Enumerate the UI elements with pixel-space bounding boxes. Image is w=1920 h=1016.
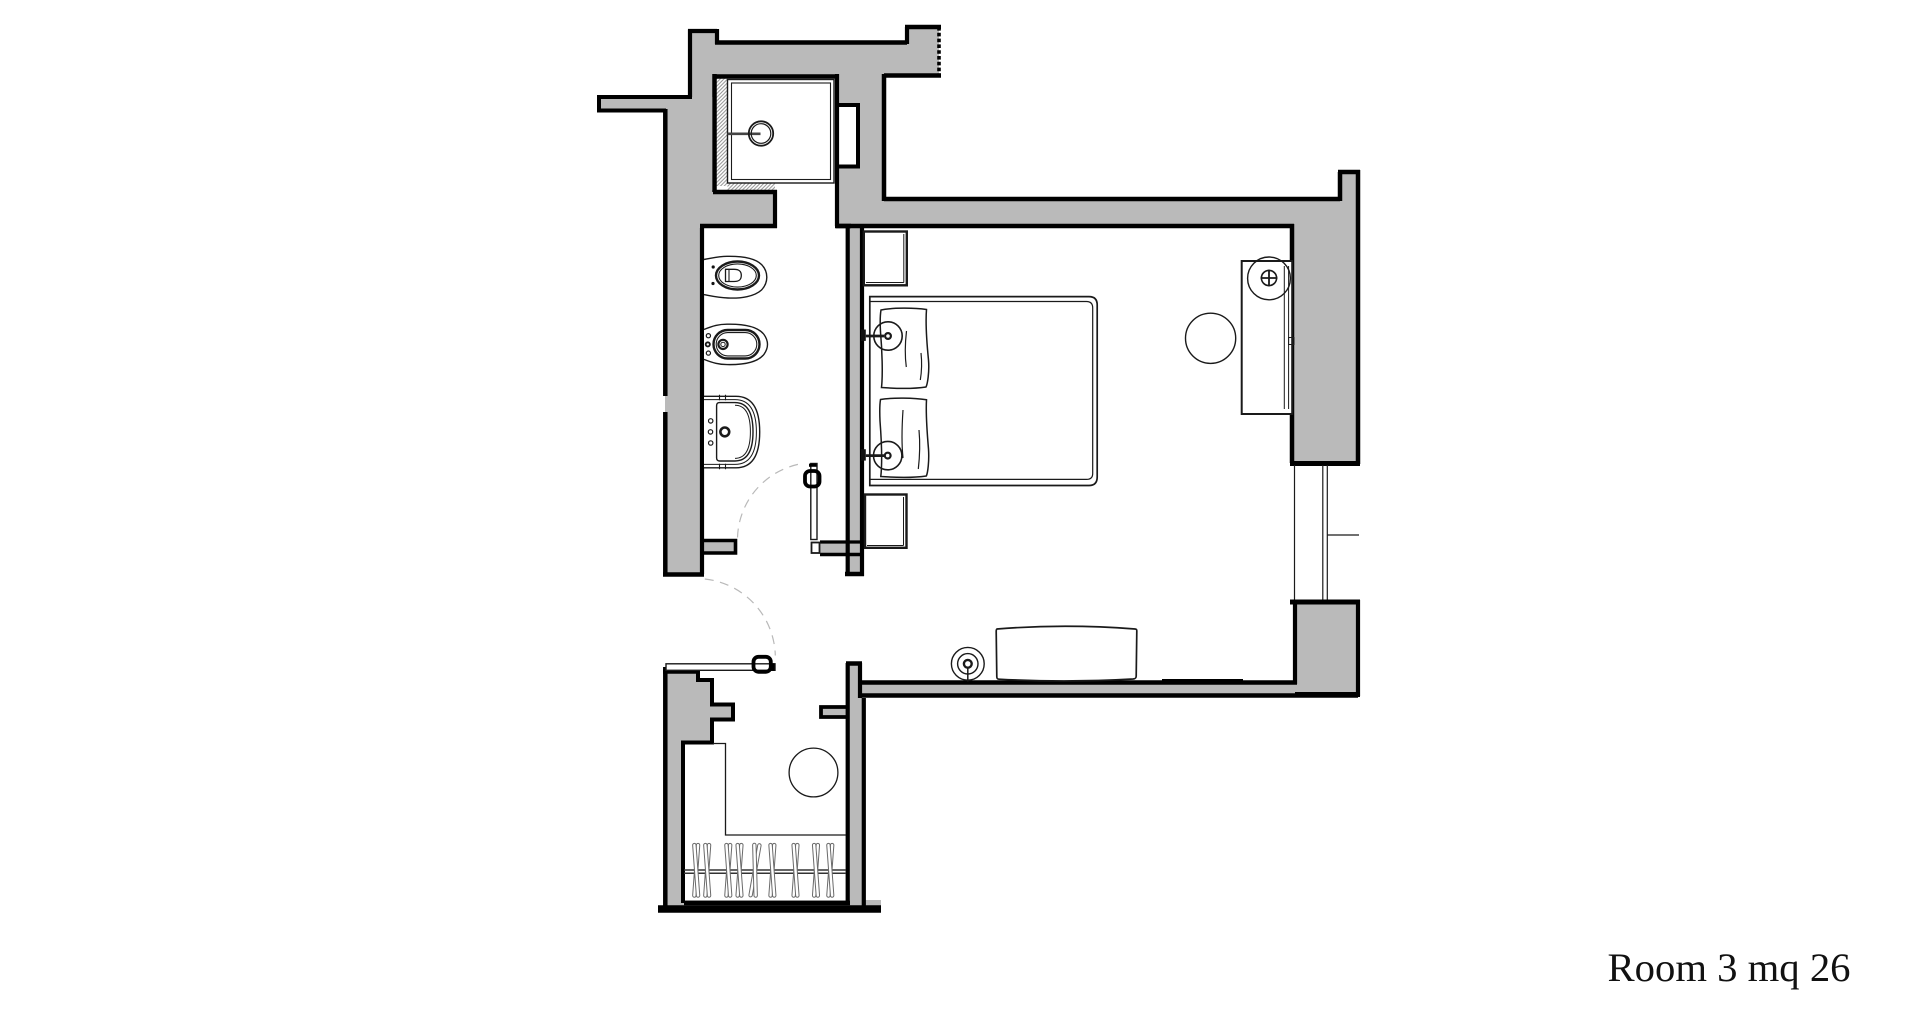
svg-text:Room 3 mq 26: Room 3 mq 26 xyxy=(1608,945,1851,990)
